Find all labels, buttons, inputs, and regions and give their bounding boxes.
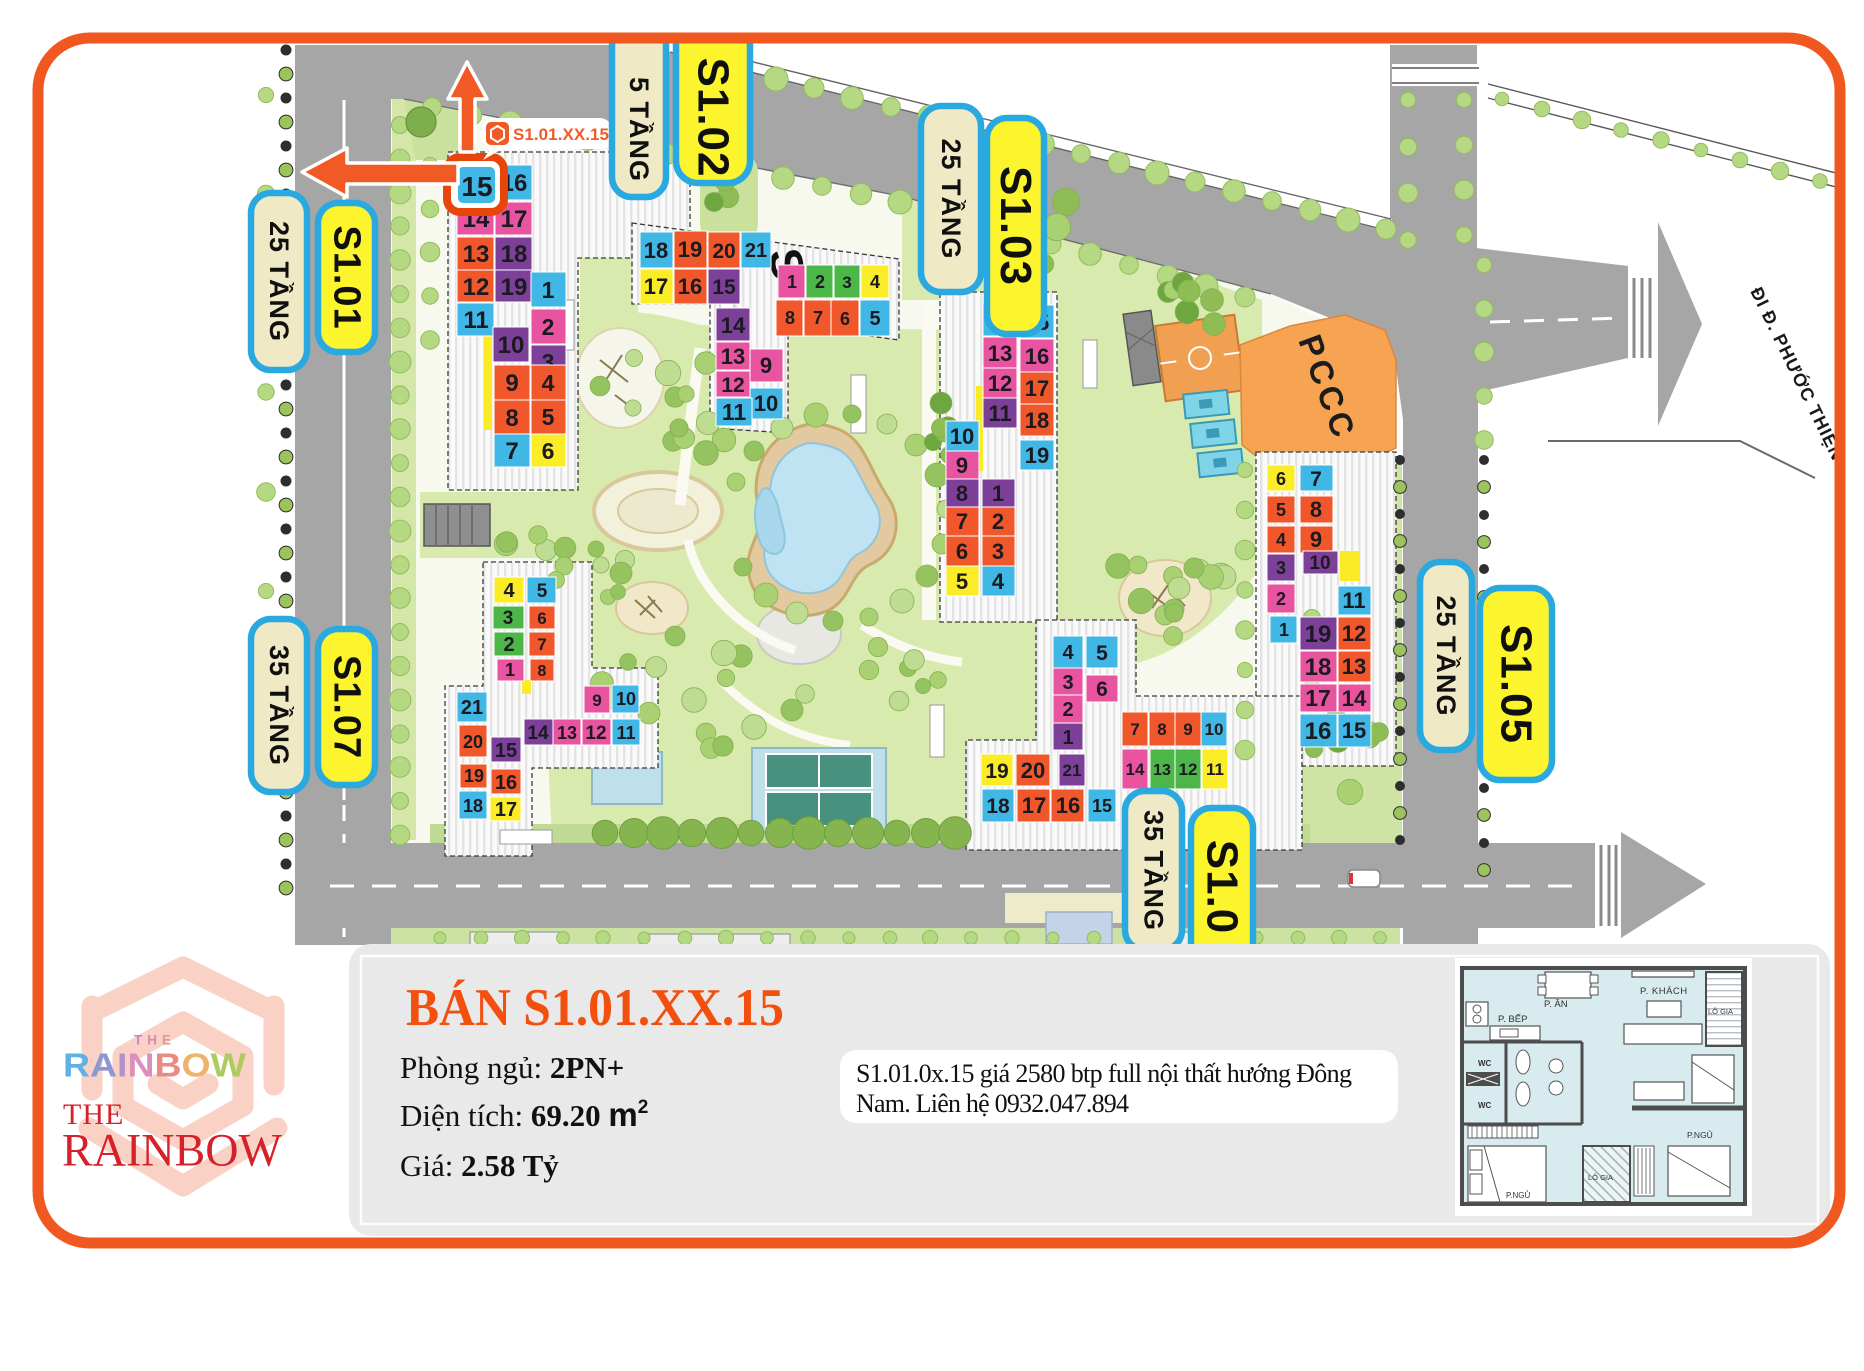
svg-text:2: 2 bbox=[815, 272, 825, 292]
svg-text:13: 13 bbox=[463, 241, 490, 268]
svg-text:16: 16 bbox=[495, 772, 517, 794]
svg-text:7: 7 bbox=[1130, 720, 1139, 739]
svg-text:15: 15 bbox=[461, 171, 492, 202]
svg-text:LÔ GIA: LÔ GIA bbox=[1708, 1007, 1733, 1016]
svg-text:17: 17 bbox=[501, 206, 528, 233]
svg-text:20: 20 bbox=[463, 732, 483, 752]
svg-text:10: 10 bbox=[950, 424, 974, 449]
svg-text:11: 11 bbox=[616, 723, 635, 743]
svg-text:25 TẦNG: 25 TẦNG bbox=[936, 138, 967, 259]
svg-text:4: 4 bbox=[1276, 530, 1286, 550]
svg-text:2: 2 bbox=[1276, 589, 1286, 609]
svg-text:18: 18 bbox=[1305, 654, 1332, 681]
svg-text:8: 8 bbox=[785, 308, 795, 328]
svg-text:18: 18 bbox=[463, 796, 483, 816]
svg-text:5 TẦNG: 5 TẦNG bbox=[624, 77, 655, 182]
svg-text:2: 2 bbox=[503, 634, 514, 656]
svg-text:18: 18 bbox=[986, 795, 1010, 818]
svg-text:S1.01.0x.15 giá 2580 btp full: S1.01.0x.15 giá 2580 btp full nội thất h… bbox=[856, 1059, 1352, 1088]
svg-text:5: 5 bbox=[542, 404, 555, 430]
svg-text:Nam. Liên hệ 0932.047.894: Nam. Liên hệ 0932.047.894 bbox=[856, 1089, 1129, 1118]
svg-text:8: 8 bbox=[505, 405, 518, 432]
svg-text:15: 15 bbox=[1342, 718, 1366, 743]
svg-text:12: 12 bbox=[988, 371, 1012, 396]
svg-text:10: 10 bbox=[1309, 553, 1330, 574]
svg-text:15: 15 bbox=[495, 740, 517, 762]
svg-text:18: 18 bbox=[501, 241, 528, 268]
svg-text:16: 16 bbox=[678, 274, 702, 299]
svg-text:P. ĂN: P. ĂN bbox=[1544, 999, 1568, 1010]
svg-text:THE: THE bbox=[134, 1033, 176, 1048]
svg-text:11: 11 bbox=[1342, 588, 1365, 613]
svg-text:7: 7 bbox=[1310, 468, 1322, 491]
svg-text:10: 10 bbox=[1205, 720, 1224, 739]
svg-text:11: 11 bbox=[722, 399, 747, 425]
svg-text:1: 1 bbox=[505, 660, 515, 680]
svg-text:P.NGỦ: P.NGỦ bbox=[1506, 1191, 1531, 1200]
svg-text:12: 12 bbox=[1179, 760, 1198, 779]
svg-text:4: 4 bbox=[1062, 642, 1074, 664]
svg-text:13: 13 bbox=[721, 344, 745, 369]
svg-text:Phòng ngủ: 2PN+: Phòng ngủ: 2PN+ bbox=[400, 1050, 624, 1085]
svg-text:21: 21 bbox=[461, 697, 483, 719]
svg-text:12: 12 bbox=[1342, 621, 1366, 646]
svg-text:8: 8 bbox=[956, 481, 968, 506]
svg-text:20: 20 bbox=[1021, 758, 1045, 783]
svg-text:Giá: 2.58 Tỷ: Giá: 2.58 Tỷ bbox=[400, 1148, 559, 1183]
svg-text:7: 7 bbox=[537, 635, 546, 654]
svg-text:9: 9 bbox=[1310, 527, 1322, 552]
svg-text:7: 7 bbox=[956, 509, 968, 534]
svg-text:16: 16 bbox=[1305, 718, 1332, 745]
svg-text:17: 17 bbox=[644, 274, 668, 299]
svg-text:35 TẦNG: 35 TẦNG bbox=[1139, 810, 1170, 931]
svg-text:P. KHÁCH: P. KHÁCH bbox=[1640, 986, 1688, 997]
svg-text:8: 8 bbox=[1157, 720, 1166, 739]
svg-text:25 TẦNG: 25 TẦNG bbox=[264, 221, 295, 342]
svg-text:4: 4 bbox=[503, 580, 515, 602]
svg-text:3: 3 bbox=[842, 273, 851, 292]
svg-text:11: 11 bbox=[1206, 760, 1224, 779]
svg-text:1: 1 bbox=[787, 272, 797, 292]
svg-text:6: 6 bbox=[840, 309, 850, 329]
svg-text:5: 5 bbox=[869, 308, 880, 330]
svg-text:9: 9 bbox=[505, 370, 518, 397]
svg-text:WC: WC bbox=[1478, 1059, 1492, 1068]
svg-text:3: 3 bbox=[1276, 558, 1286, 578]
svg-text:2: 2 bbox=[992, 509, 1004, 534]
svg-text:P.NGỦ: P.NGỦ bbox=[1687, 1129, 1713, 1140]
svg-text:10: 10 bbox=[616, 689, 636, 709]
svg-text:LÔ GIA: LÔ GIA bbox=[1588, 1173, 1613, 1182]
svg-text:4: 4 bbox=[542, 370, 555, 396]
svg-text:RAINBOW: RAINBOW bbox=[63, 1047, 247, 1084]
svg-text:S1.0: S1.0 bbox=[1198, 840, 1247, 935]
svg-text:19: 19 bbox=[464, 766, 484, 786]
svg-text:18: 18 bbox=[1025, 408, 1049, 433]
svg-text:6: 6 bbox=[537, 609, 546, 628]
svg-text:6: 6 bbox=[542, 438, 555, 464]
svg-text:19: 19 bbox=[678, 237, 702, 262]
svg-text:15: 15 bbox=[712, 276, 736, 299]
svg-text:11: 11 bbox=[463, 307, 488, 334]
svg-text:13: 13 bbox=[1342, 654, 1366, 679]
svg-text:5: 5 bbox=[537, 581, 548, 602]
svg-text:9: 9 bbox=[956, 453, 968, 478]
svg-text:21: 21 bbox=[745, 240, 767, 262]
svg-text:P. BẾP: P. BẾP bbox=[1498, 1014, 1527, 1025]
svg-text:RAINBOW: RAINBOW bbox=[62, 1125, 283, 1177]
svg-text:14: 14 bbox=[527, 723, 549, 744]
svg-text:9: 9 bbox=[1183, 720, 1192, 739]
svg-text:S1.05: S1.05 bbox=[1492, 624, 1541, 744]
svg-text:4: 4 bbox=[870, 272, 880, 292]
svg-text:18: 18 bbox=[644, 238, 668, 263]
svg-text:2: 2 bbox=[1062, 699, 1073, 721]
svg-text:21: 21 bbox=[1063, 761, 1082, 780]
svg-text:19: 19 bbox=[501, 274, 528, 301]
svg-text:5: 5 bbox=[1276, 500, 1286, 520]
svg-text:11: 11 bbox=[988, 401, 1011, 426]
svg-text:S1.01.XX.15: S1.01.XX.15 bbox=[513, 125, 609, 144]
svg-text:12: 12 bbox=[721, 374, 744, 397]
svg-text:8: 8 bbox=[538, 663, 547, 680]
svg-text:6: 6 bbox=[1096, 678, 1108, 701]
svg-text:9: 9 bbox=[760, 353, 772, 378]
svg-text:S1.02: S1.02 bbox=[689, 58, 738, 178]
svg-text:13: 13 bbox=[1153, 762, 1171, 779]
svg-text:1: 1 bbox=[1279, 620, 1289, 640]
svg-text:8: 8 bbox=[1310, 497, 1322, 522]
svg-text:16: 16 bbox=[1025, 344, 1049, 369]
svg-text:6: 6 bbox=[1276, 469, 1286, 489]
svg-text:4: 4 bbox=[992, 569, 1005, 594]
svg-text:10: 10 bbox=[754, 391, 778, 416]
svg-text:7: 7 bbox=[813, 308, 823, 328]
svg-text:17: 17 bbox=[1022, 793, 1046, 818]
svg-text:WC: WC bbox=[1478, 1101, 1492, 1110]
svg-text:5: 5 bbox=[956, 569, 968, 594]
svg-text:1: 1 bbox=[542, 277, 555, 303]
svg-text:25 TẦNG: 25 TẦNG bbox=[1431, 595, 1462, 716]
svg-text:20: 20 bbox=[712, 240, 735, 263]
svg-text:19: 19 bbox=[985, 760, 1008, 783]
svg-text:9: 9 bbox=[592, 691, 601, 710]
svg-text:19: 19 bbox=[1025, 443, 1049, 468]
svg-text:6: 6 bbox=[956, 539, 968, 564]
svg-text:3: 3 bbox=[1062, 672, 1073, 694]
svg-text:35 TẦNG: 35 TẦNG bbox=[264, 645, 295, 766]
svg-text:15: 15 bbox=[1092, 796, 1112, 816]
svg-text:S1.01: S1.01 bbox=[326, 225, 368, 329]
svg-text:17: 17 bbox=[1305, 685, 1331, 711]
svg-text:3: 3 bbox=[503, 608, 514, 629]
svg-text:S1.03: S1.03 bbox=[991, 166, 1040, 286]
svg-text:1: 1 bbox=[992, 481, 1004, 506]
svg-text:13: 13 bbox=[557, 723, 577, 743]
svg-text:3: 3 bbox=[992, 539, 1004, 564]
svg-text:5: 5 bbox=[1096, 642, 1108, 665]
svg-text:14: 14 bbox=[1126, 760, 1145, 779]
svg-text:13: 13 bbox=[988, 341, 1012, 366]
svg-text:14: 14 bbox=[1342, 686, 1367, 711]
svg-text:16: 16 bbox=[1056, 793, 1080, 818]
svg-text:12: 12 bbox=[463, 274, 490, 301]
svg-text:7: 7 bbox=[505, 438, 518, 465]
svg-text:19: 19 bbox=[1305, 621, 1332, 648]
svg-text:2: 2 bbox=[542, 314, 555, 340]
svg-text:12: 12 bbox=[585, 723, 606, 744]
svg-text:17: 17 bbox=[495, 799, 517, 821]
svg-text:S1.07: S1.07 bbox=[326, 655, 368, 759]
svg-text:17: 17 bbox=[1025, 376, 1049, 401]
svg-text:1: 1 bbox=[1062, 727, 1073, 749]
svg-text:10: 10 bbox=[498, 332, 525, 359]
svg-text:14: 14 bbox=[721, 313, 746, 338]
svg-text:BÁN S1.01.XX.15: BÁN S1.01.XX.15 bbox=[406, 979, 784, 1037]
svg-text:Diện tích: 69.20 m2: Diện tích: 69.20 m2 bbox=[400, 1096, 648, 1133]
